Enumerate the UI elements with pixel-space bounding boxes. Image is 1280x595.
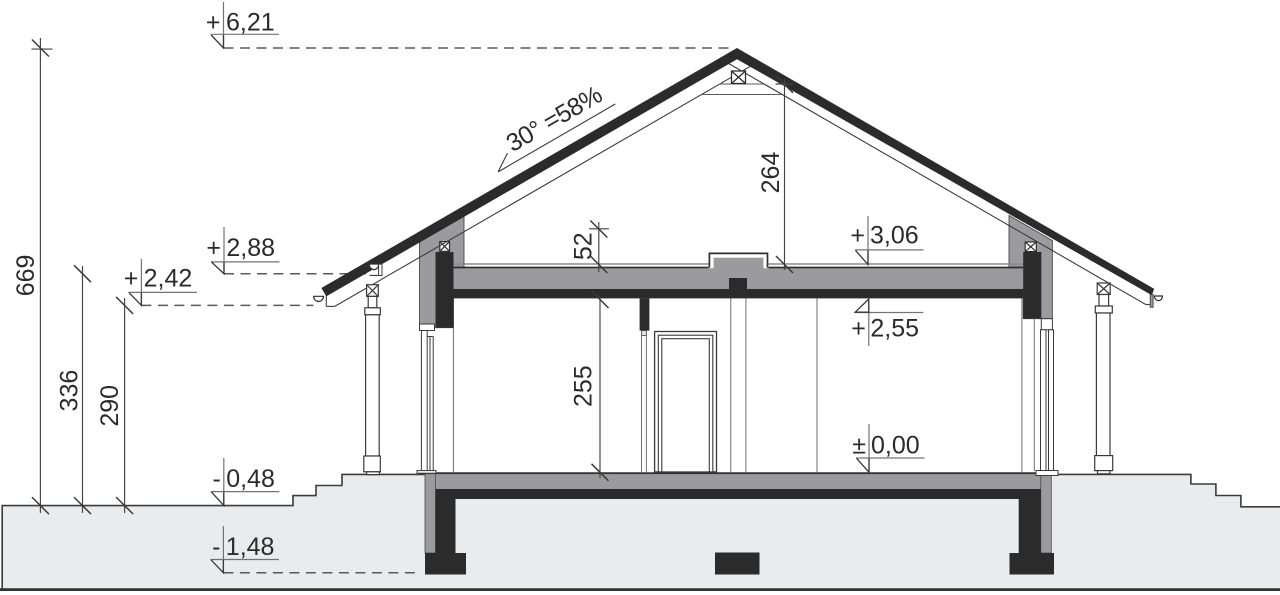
svg-text:2,88: 2,88 [226,234,275,262]
svg-text:264: 264 [757,152,785,194]
svg-text:+: + [850,222,865,250]
svg-text:0,48: 0,48 [226,465,275,493]
svg-text:336: 336 [56,370,84,412]
svg-text:52: 52 [569,232,597,260]
svg-text:-: - [212,465,220,493]
svg-text:669: 669 [12,255,40,297]
svg-text:+: + [851,315,866,343]
svg-text:0,00: 0,00 [871,432,920,460]
svg-text:290: 290 [96,385,124,427]
svg-text:1,48: 1,48 [226,533,275,561]
svg-text:+: + [206,8,221,36]
svg-text:-: - [212,533,220,561]
svg-text:+: + [124,265,139,293]
svg-text:2,42: 2,42 [144,265,193,293]
svg-text:255: 255 [570,365,598,407]
svg-text:2,55: 2,55 [870,315,919,343]
svg-text:6,21: 6,21 [226,8,275,36]
svg-text:+: + [206,234,221,262]
svg-text:±: ± [852,432,866,460]
svg-text:3,06: 3,06 [870,222,919,250]
